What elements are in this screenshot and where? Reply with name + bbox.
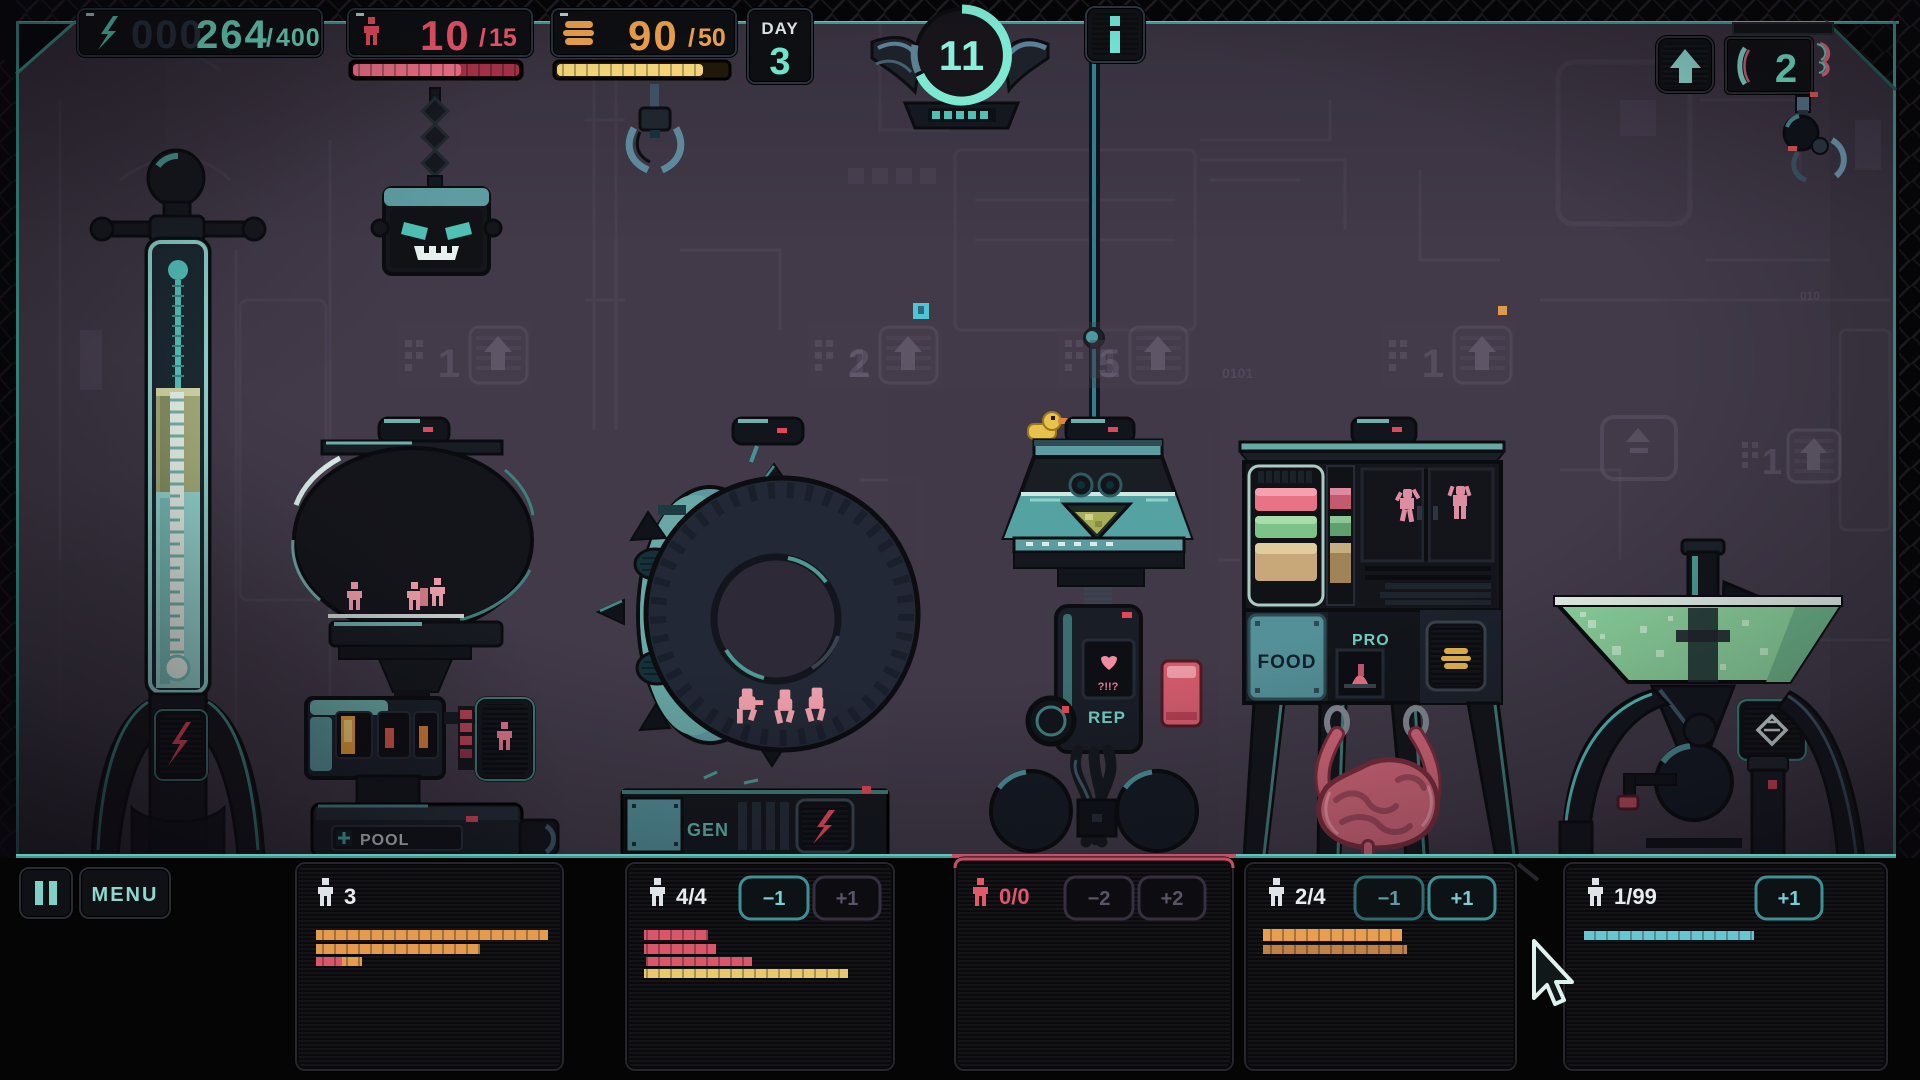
svg-text:−1: −1 [1378,888,1401,910]
svg-text:+1: +1 [1778,888,1801,910]
svg-text:+1: +1 [836,888,859,910]
svg-text:1/99: 1/99 [1614,884,1657,909]
svg-text:+1: +1 [1451,888,1474,910]
svg-text:4/4: 4/4 [676,884,707,909]
svg-text:2/4: 2/4 [1295,884,1326,909]
svg-text:−1: −1 [763,888,786,910]
svg-text:3: 3 [344,884,356,909]
svg-text:MENU: MENU [92,884,159,906]
svg-text:0/0: 0/0 [999,884,1030,909]
svg-text:−2: −2 [1088,888,1111,910]
svg-text:+2: +2 [1161,888,1184,910]
